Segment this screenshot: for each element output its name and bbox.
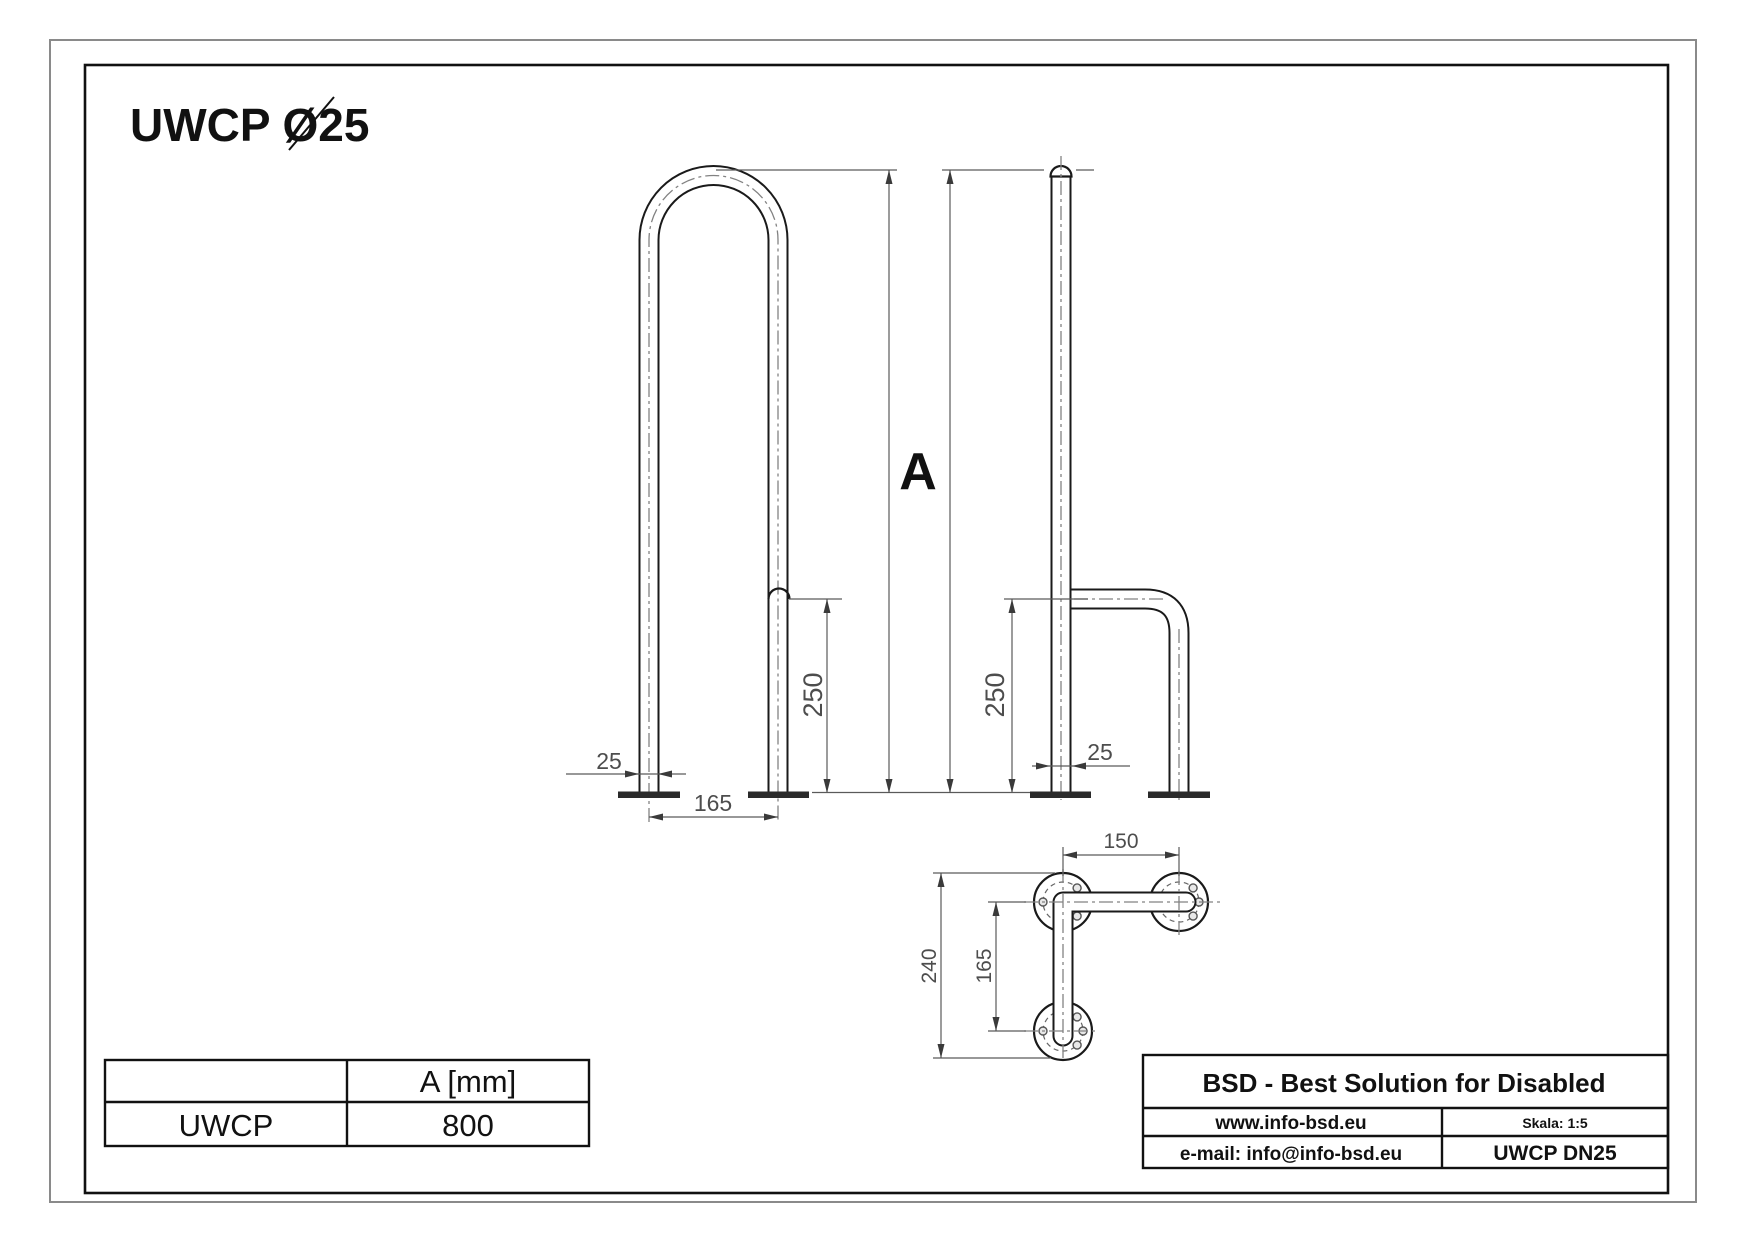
side-dim-25-label: 25 bbox=[1087, 739, 1113, 765]
front-right-base-plate bbox=[748, 792, 809, 799]
spec-table-value-cell: 800 bbox=[442, 1108, 494, 1143]
drawing-title: UWCP Ø25 bbox=[130, 97, 369, 151]
top-dim-240-label: 240 bbox=[918, 948, 941, 983]
top-dim-150-label: 150 bbox=[1103, 830, 1138, 853]
front-left-base-plate bbox=[618, 792, 680, 799]
spec-table-header-a-mm: A [mm] bbox=[420, 1064, 516, 1099]
company-name: BSD - Best Solution for Disabled bbox=[1202, 1068, 1605, 1098]
side-dim-250-label: 250 bbox=[980, 672, 1010, 717]
side-main-base-plate bbox=[1030, 792, 1091, 799]
product-code: UWCP DN25 bbox=[1493, 1142, 1617, 1165]
height-label-a: A bbox=[899, 443, 937, 501]
front-dim-25-label: 25 bbox=[596, 748, 622, 774]
email: e-mail: info@info-bsd.eu bbox=[1180, 1144, 1402, 1165]
website: www.info-bsd.eu bbox=[1214, 1113, 1366, 1134]
side-leg-base-plate bbox=[1148, 792, 1210, 799]
page-title: UWCP Ø25 bbox=[130, 99, 369, 151]
spec-table-model-cell: UWCP bbox=[179, 1108, 274, 1143]
front-dim-250-label: 250 bbox=[798, 672, 828, 717]
top-dim-165-label: 165 bbox=[973, 948, 996, 983]
front-dim-165-label: 165 bbox=[694, 790, 732, 816]
drawing-sheet: UWCP Ø25 25 165 bbox=[0, 0, 1754, 1240]
scale-label: Skala: 1:5 bbox=[1522, 1115, 1588, 1131]
technical-drawing-canvas: UWCP Ø25 25 165 bbox=[0, 0, 1754, 1240]
